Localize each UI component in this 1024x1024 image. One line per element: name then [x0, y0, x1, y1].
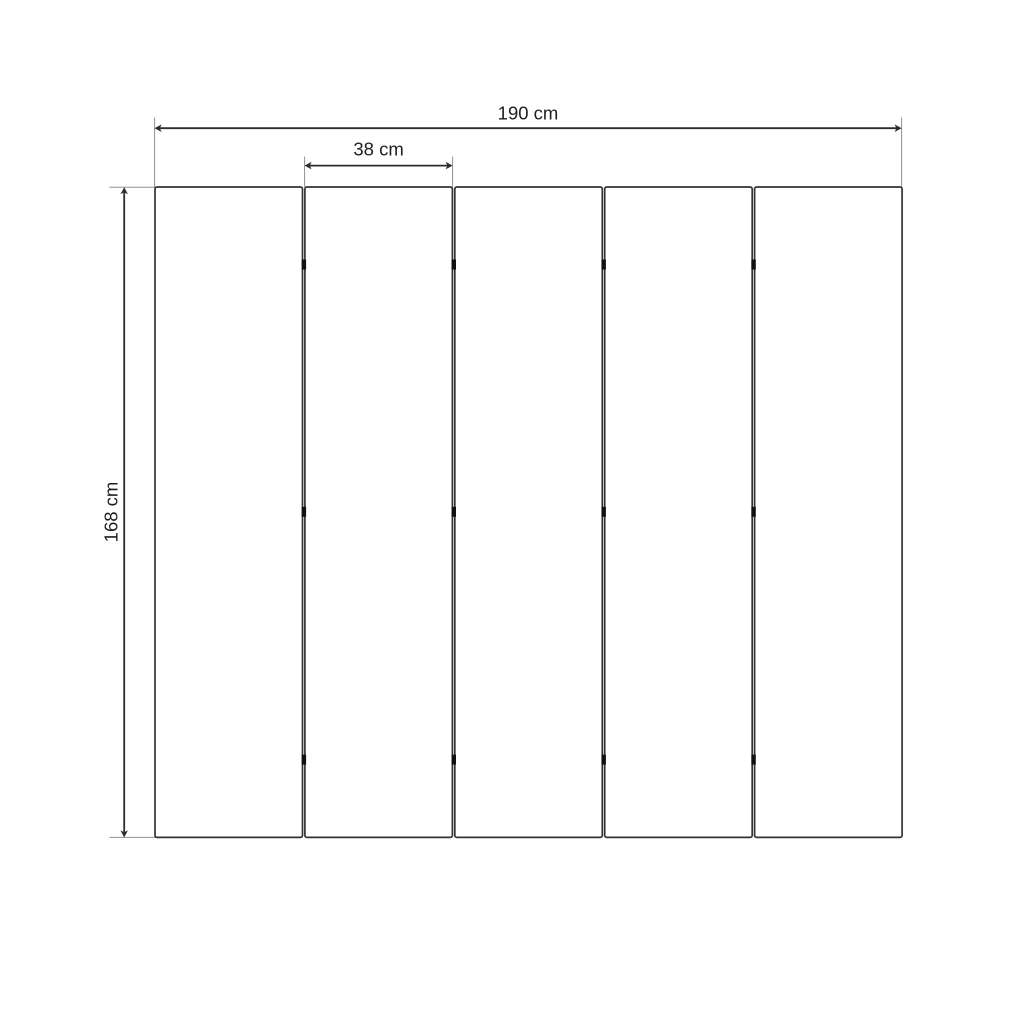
svg-text:190 cm: 190 cm — [498, 103, 559, 124]
svg-text:38 cm: 38 cm — [353, 139, 403, 160]
svg-text:168 cm: 168 cm — [100, 482, 121, 543]
